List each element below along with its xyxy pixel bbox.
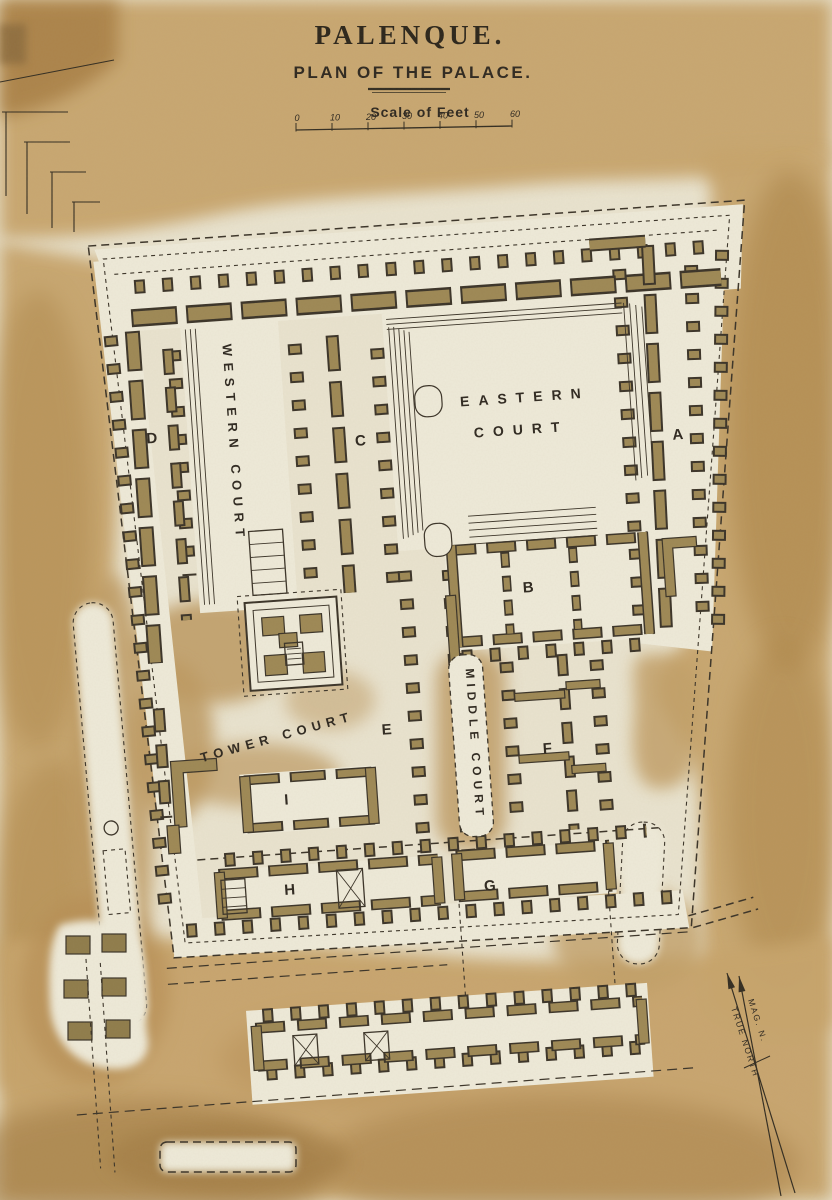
paper-grain-overlay [0, 0, 832, 1200]
palenque-plan-figure: WESTERN COURT EASTERN COURT MIDDLE COURT… [0, 0, 832, 1200]
scanned-plate: WESTERN COURT EASTERN COURT MIDDLE COURT… [0, 0, 832, 1200]
